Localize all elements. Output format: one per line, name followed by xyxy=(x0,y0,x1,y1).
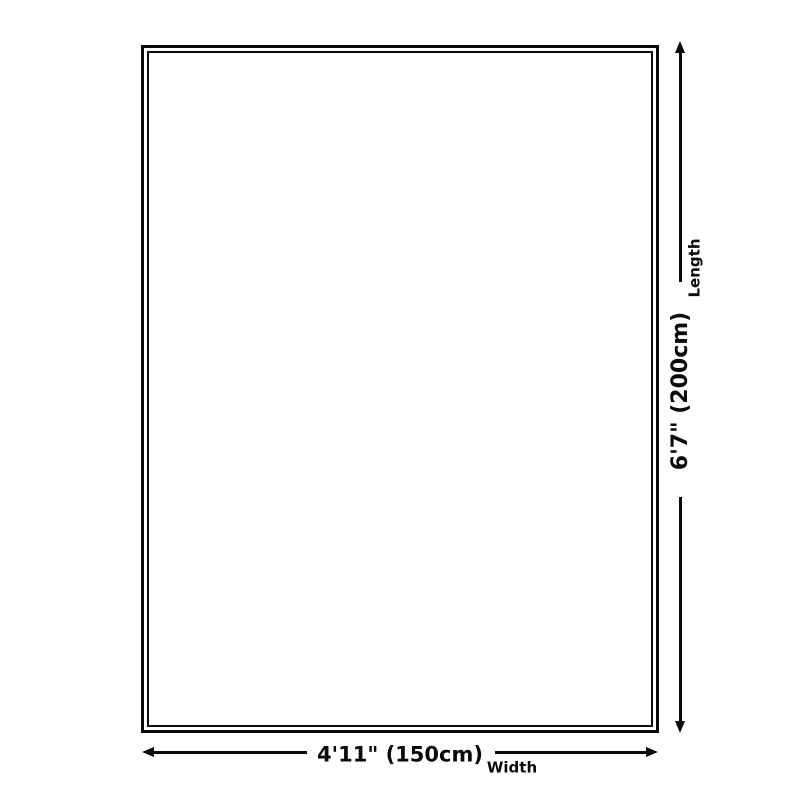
rug-outline xyxy=(141,45,659,733)
arrow-right-icon xyxy=(646,747,658,757)
length-label: Length xyxy=(688,239,703,298)
width-line-left xyxy=(153,751,307,754)
arrow-down-icon xyxy=(675,721,685,733)
product-size-diagram: Length 6'7" (200cm) 4'11" (150cm) Width xyxy=(0,0,800,800)
length-line-upper xyxy=(679,51,682,282)
width-label: Width xyxy=(487,761,537,776)
width-line-right xyxy=(495,751,647,754)
length-line-lower xyxy=(679,497,682,723)
length-value: 6'7" (200cm) xyxy=(670,312,692,470)
width-value: 4'11" (150cm) xyxy=(317,745,483,766)
rug-inner-border xyxy=(147,51,653,727)
